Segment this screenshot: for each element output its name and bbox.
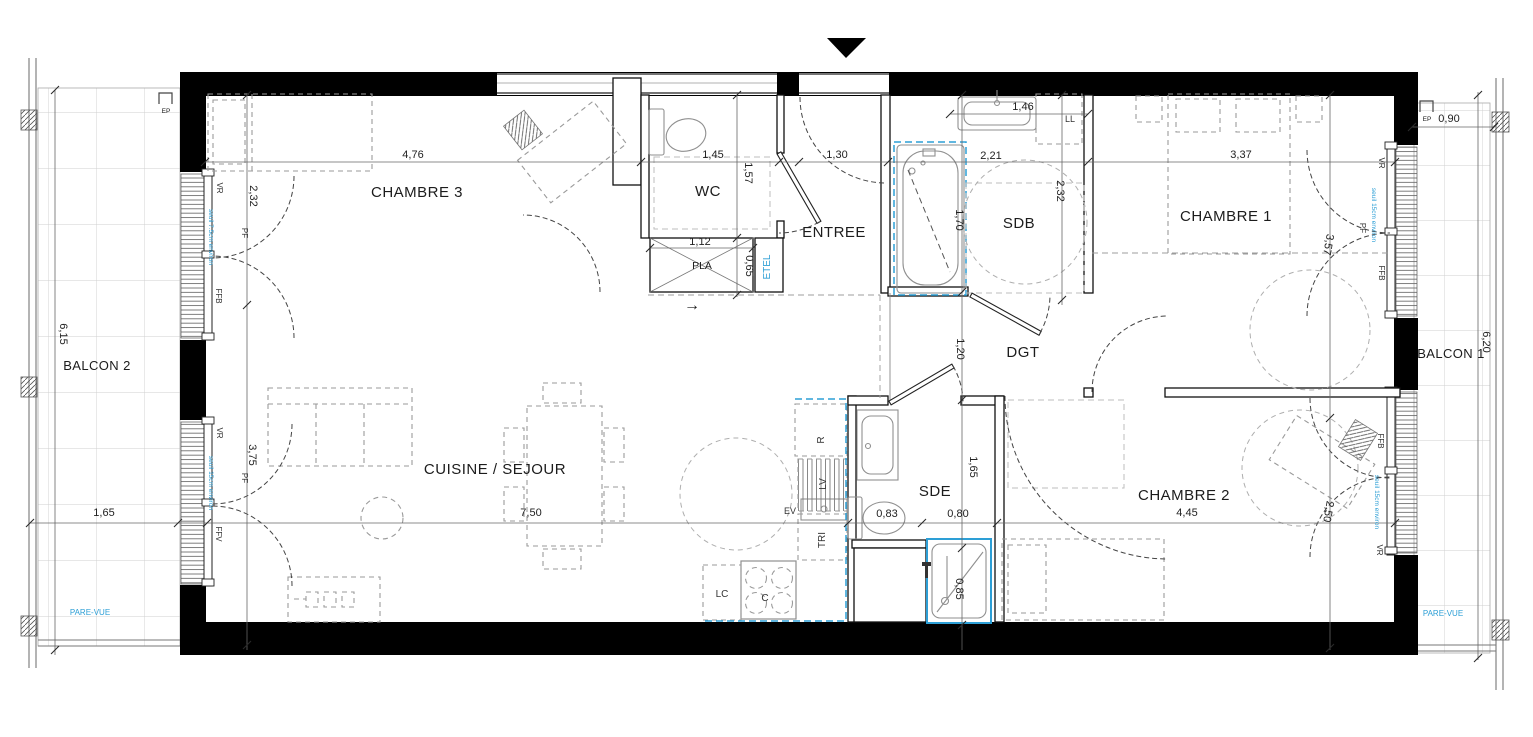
room-label-dgt: DGT: [1006, 344, 1039, 361]
entrance-door-opening: [799, 73, 889, 95]
sdb-door-swing: [1040, 295, 1050, 333]
dim-entree-width: 1,30: [826, 149, 847, 161]
vr-label: VR: [1375, 544, 1384, 555]
chair-chambre3: [504, 110, 543, 150]
seuil-note: seuil 15cm environ: [207, 456, 214, 511]
etel-label: ETEL: [762, 254, 773, 279]
chambre2-door-swing: [1005, 396, 1168, 559]
sofa: [268, 388, 412, 466]
bed-chambre2: [1002, 539, 1164, 620]
wc-toilet: [649, 109, 709, 156]
sde-basin: [857, 410, 898, 480]
window-chambre1: [1385, 142, 1417, 318]
tri-label: TRI: [817, 532, 828, 548]
chair-chambre2: [1338, 420, 1377, 461]
dim-wc-width: 1,45: [702, 149, 723, 161]
dim-chambre3-depth: 2,32: [247, 185, 259, 206]
room-label-chambre2: CHAMBRE 2: [1138, 487, 1230, 504]
floor-plan: CHAMBRE 3 WC PLA ENTREE SDB CHAMBRE 1 BA…: [0, 0, 1533, 737]
turning-circle-chambre2: [1242, 410, 1358, 526]
floor-plan-drawing: CHAMBRE 3 WC PLA ENTREE SDB CHAMBRE 1 BA…: [0, 0, 1533, 737]
ffb-label: FFB: [1376, 433, 1385, 448]
laundry-label: LC: [716, 589, 729, 600]
room-label-cuisine-sejour: CUISINE / SEJOUR: [424, 461, 566, 478]
ep-label: EP: [162, 108, 171, 115]
dim-pla-width: 1,12: [689, 236, 710, 248]
dim-chambre1-width: 3,37: [1230, 149, 1251, 161]
pf-label: PF: [240, 473, 249, 483]
desk-chambre3: [518, 101, 627, 203]
dim-chambre2-width: 4,45: [1176, 507, 1197, 519]
pare-vue-label: PARE-VUE: [70, 608, 110, 617]
vr-label: VR: [215, 427, 224, 438]
dim-chambre2-depth: 2,50: [1320, 500, 1336, 523]
dim-balcon2-depth: 6,15: [57, 323, 69, 344]
dim-wc-depth: 1,57: [742, 162, 754, 183]
bed-chambre3: [208, 94, 372, 171]
dim-sde-depth: 1,65: [967, 456, 979, 477]
dim-chambre3-width: 4,76: [402, 149, 423, 161]
dim-bath: 1,70: [953, 209, 965, 230]
bed-chambre1: [1136, 94, 1322, 254]
seuil-note: seuil 15cm environ: [1373, 475, 1380, 530]
sdb-door-leaf: [970, 293, 1041, 335]
railing-post: [21, 110, 37, 130]
railing-post: [1492, 112, 1509, 132]
pf-label: PF: [240, 228, 249, 238]
entrance-door-swing: [800, 97, 886, 183]
dim-sdb-depth: 2,32: [1054, 180, 1066, 201]
entrance-marker-triangle: [827, 38, 866, 58]
railing-post: [21, 616, 37, 636]
dim-chambre1-depth: 3,57: [1320, 233, 1336, 256]
washing-machine: [1036, 94, 1082, 144]
dim-sdb-sink: 1,46: [1012, 101, 1033, 113]
dim-sdb-width: 2,21: [980, 150, 1001, 162]
dim-pla-depth: 0,65: [743, 255, 755, 276]
window-chambre2: [1385, 387, 1417, 555]
room-label-balcon1: BALCON 1: [1417, 346, 1485, 361]
seuil-note: seuil 15cm environ: [1370, 188, 1377, 243]
ffb-label: FFB: [1377, 265, 1386, 280]
seuil-note: seuil 7.5cm environ: [207, 209, 214, 265]
pare-vue-label: PARE-VUE: [1423, 609, 1463, 618]
exterior-walls: [180, 38, 1418, 655]
railing-post: [1492, 620, 1509, 640]
dim-balcon1-width: 0,90: [1438, 113, 1459, 125]
dim-shower: 0,85: [953, 578, 965, 599]
room-label-chambre1: CHAMBRE 1: [1180, 208, 1272, 225]
sde-closet: [854, 548, 926, 622]
dim-balcon1-depth: 6,20: [1480, 331, 1492, 352]
dimension-lines: [26, 86, 1498, 662]
room-label-sde: SDE: [919, 483, 951, 500]
direction-arrow: →: [684, 297, 700, 314]
dim-balcon2-width: 1,65: [93, 507, 114, 519]
sde-door-leaf: [889, 364, 954, 405]
sink-label: EV: [784, 506, 796, 516]
room-label-pla: PLA: [692, 260, 712, 272]
dim-sde-w1: 0,83: [876, 508, 897, 520]
cooktop: [741, 561, 796, 619]
room-label-sdb: SDB: [1003, 215, 1035, 232]
room-label-balcon2: BALCON 2: [63, 358, 131, 373]
dishwasher-label: LV: [818, 478, 829, 490]
ffv-label: FFV: [214, 526, 223, 542]
refrigerator: [795, 404, 847, 456]
pf-label: PF: [1358, 223, 1367, 233]
dim-sejour-depth: 3,75: [246, 444, 258, 465]
refrigerator-label: R: [816, 436, 827, 443]
cooktop-label: C: [761, 593, 768, 604]
tv-unit: [288, 577, 380, 622]
chambre1-door-swing: [1092, 316, 1168, 392]
dim-sde-w2: 0,80: [947, 508, 968, 520]
dim-dgt-depth: 1,20: [954, 338, 966, 359]
washing-machine-label: LL: [1065, 114, 1075, 124]
ffb-label: FFB: [214, 288, 223, 303]
room-label-wc: WC: [695, 183, 721, 200]
vr-label: VR: [215, 182, 224, 193]
turning-circle-chambre1: [1250, 270, 1370, 390]
ep-label: EP: [1423, 116, 1432, 123]
room-label-chambre3: CHAMBRE 3: [371, 184, 463, 201]
labels: CHAMBRE 3 WC PLA ENTREE SDB CHAMBRE 1 BA…: [57, 101, 1492, 618]
dim-cuisine-width: 7,50: [520, 507, 541, 519]
chambre3-door-swing: [523, 215, 600, 292]
room-label-entree: ENTREE: [802, 224, 866, 241]
balcony-1: [1414, 78, 1509, 690]
turning-circle-cuisine: [680, 438, 792, 550]
vr-label: VR: [1377, 157, 1386, 168]
railing-post: [21, 377, 37, 397]
side-table: [361, 497, 403, 539]
